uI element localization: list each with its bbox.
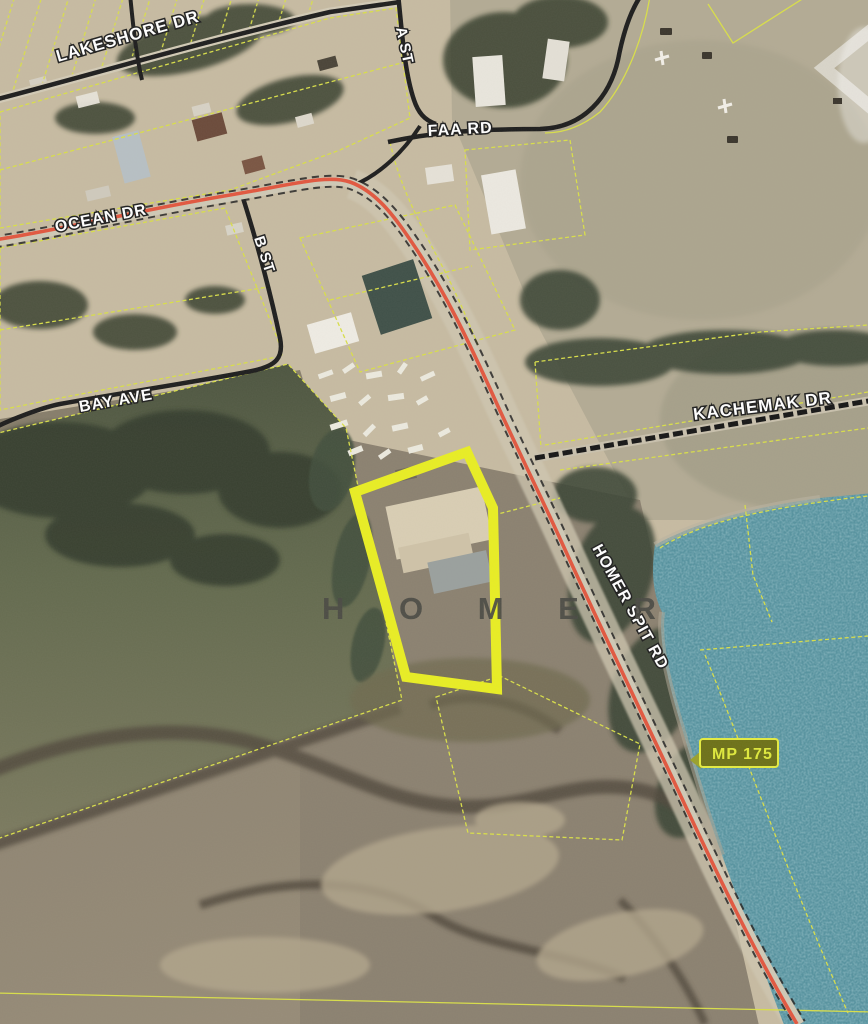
parcel-map-svg: LAKESHORE DR A ST FAA RD OCEAN DR B ST B… bbox=[0, 0, 868, 1024]
photo-grain-overlay bbox=[0, 0, 868, 1024]
map-canvas: LAKESHORE DR A ST FAA RD OCEAN DR B ST B… bbox=[0, 0, 868, 1024]
